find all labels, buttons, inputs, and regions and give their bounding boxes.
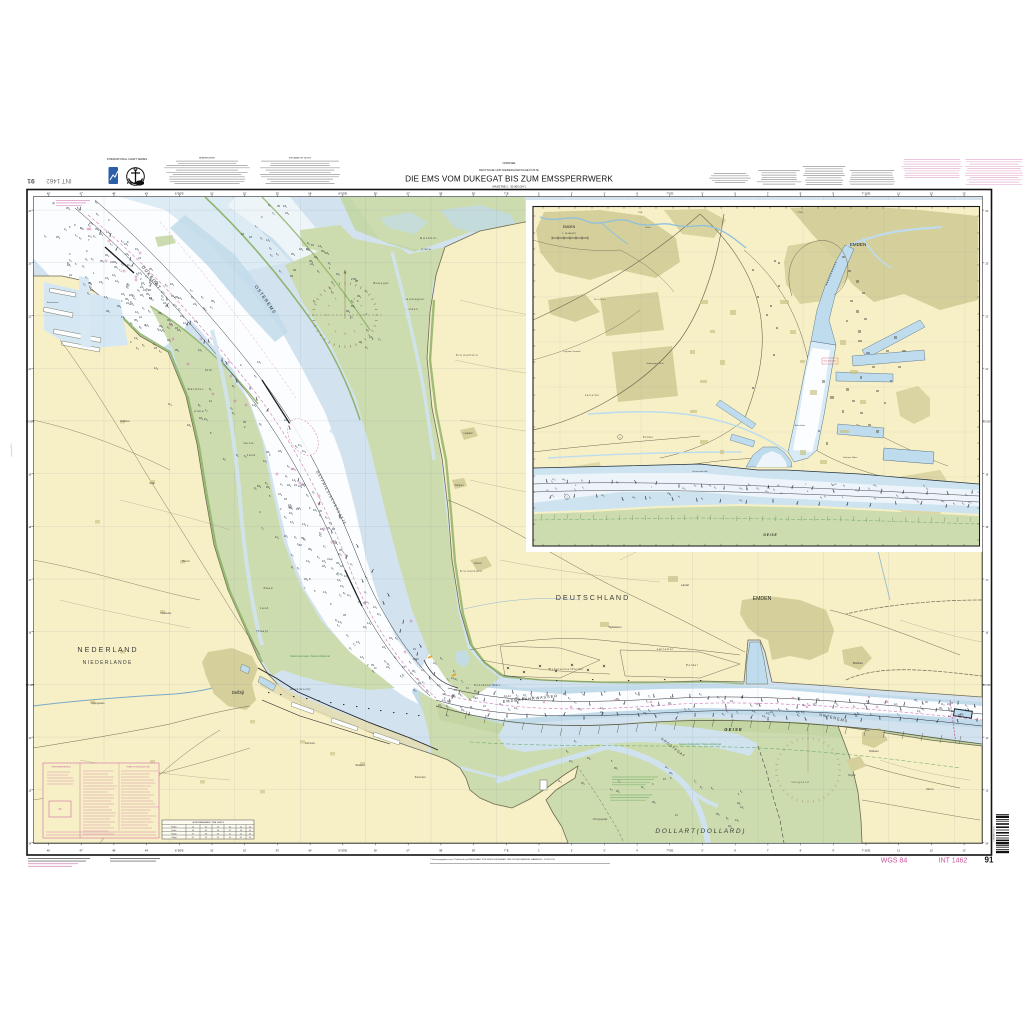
svg-text:DIE EMS VOM DUKEGAT BIS ZUM EM: DIE EMS VOM DUKEGAT BIS ZUM EMSSPERRWERK bbox=[405, 175, 613, 184]
svg-text:0.7: 0.7 bbox=[229, 830, 231, 832]
svg-text:0.7: 0.7 bbox=[192, 833, 194, 835]
svg-text:(1): (1) bbox=[52, 202, 55, 205]
svg-text:Außenhafen: Außenhafen bbox=[795, 424, 805, 427]
svg-text:© Herausgegeben vom / Publishe: © Herausgegeben vom / Published by BUNDE… bbox=[430, 858, 556, 861]
svg-text:0.6: 0.6 bbox=[249, 837, 251, 839]
svg-text:( P a a p ): ( P a a p ) bbox=[256, 629, 268, 633]
svg-text:B o k e g a t: B o k e g a t bbox=[374, 281, 389, 285]
svg-text:Pogum: Pogum bbox=[171, 833, 177, 835]
svg-text:57′: 57′ bbox=[407, 191, 411, 195]
svg-text:7°10'E: 7°10'E bbox=[797, 212, 804, 214]
svg-text:17′: 17′ bbox=[28, 579, 32, 582]
svg-text:12: 12 bbox=[582, 487, 584, 490]
svg-text:76: 76 bbox=[552, 495, 554, 498]
svg-text:0.3: 0.3 bbox=[217, 826, 219, 828]
svg-text:H o n d ( H o n d ): H o n d ( H o n d ) bbox=[290, 687, 311, 691]
svg-text:Knick: Knick bbox=[645, 227, 651, 229]
svg-text:22: 22 bbox=[551, 481, 553, 484]
svg-text:7°10′E: 7°10′E bbox=[862, 849, 871, 853]
svg-text:Delfzijl: Delfzijl bbox=[172, 837, 178, 839]
svg-text:46: 46 bbox=[962, 503, 964, 506]
svg-text:24′: 24′ bbox=[28, 210, 32, 213]
svg-text:0.4: 0.4 bbox=[229, 826, 231, 828]
svg-text:Naturschutzgebiet / Natuur-Res: Naturschutzgebiet / Natuur-Reservat bbox=[679, 742, 721, 746]
svg-text:53°20′N: 53°20′N bbox=[26, 421, 35, 424]
svg-text:B r ü c k e n: B r ü c k e n bbox=[594, 298, 606, 301]
svg-text:16′: 16′ bbox=[985, 632, 989, 635]
svg-text:14′: 14′ bbox=[28, 737, 32, 740]
svg-text:14: 14 bbox=[923, 485, 925, 488]
svg-text:6°55′E: 6°55′E bbox=[338, 849, 347, 853]
svg-text:21′: 21′ bbox=[28, 368, 32, 371]
svg-text:p l a t e: p l a t e bbox=[194, 409, 204, 413]
svg-text:Gedruckt 2019: Gedruckt 2019 bbox=[10, 443, 13, 457]
svg-text:0.2: 0.2 bbox=[205, 826, 207, 828]
svg-text:BEMERKUNGEN: BEMERKUNGEN bbox=[199, 158, 215, 160]
svg-text:59′: 59′ bbox=[472, 849, 476, 853]
svg-text:K n o c k s t e r W a r t: K n o c k s t e r W a r t bbox=[474, 683, 500, 687]
svg-text:0.1: 0.1 bbox=[192, 826, 194, 828]
svg-text:Natuurreservaat / Natuur-Reser: Natuurreservaat / Natuur-Reservat bbox=[290, 654, 330, 658]
svg-text:56: 56 bbox=[649, 497, 651, 500]
svg-text:96: 96 bbox=[820, 497, 822, 500]
svg-text:p l a t e: p l a t e bbox=[421, 247, 431, 251]
svg-text:12′: 12′ bbox=[930, 849, 934, 853]
svg-text:0.8: 0.8 bbox=[240, 830, 242, 832]
svg-text:K r u m m h ö r n: K r u m m h ö r n bbox=[460, 569, 483, 573]
svg-text:D O L L A R T ( D O L L A R: D O L L A R T ( D O L L A R D ) bbox=[655, 828, 744, 835]
svg-text:Heringsgaatje: Heringsgaatje bbox=[593, 818, 608, 821]
svg-text:MASSTAB 1 : 30 000 (54°): MASSTAB 1 : 30 000 (54°) bbox=[492, 185, 525, 189]
svg-text:19′: 19′ bbox=[985, 473, 989, 476]
svg-text:56′: 56′ bbox=[374, 191, 378, 195]
svg-text:44: 44 bbox=[917, 501, 919, 504]
svg-text:VERKEHRSREGELN: VERKEHRSREGELN bbox=[51, 767, 71, 769]
svg-text:13′: 13′ bbox=[962, 849, 966, 853]
svg-text:Godlinze: Godlinze bbox=[120, 420, 130, 423]
svg-text:14′: 14′ bbox=[985, 737, 989, 740]
svg-text:P o l d e r: P o l d e r bbox=[686, 663, 698, 667]
svg-text:53°20′N: 53°20′N bbox=[983, 421, 992, 424]
svg-text:54′: 54′ bbox=[308, 849, 312, 853]
svg-text:EMDEN: EMDEN bbox=[563, 225, 576, 229]
svg-text:P a a p: P a a p bbox=[264, 586, 273, 590]
svg-text:88: 88 bbox=[701, 498, 703, 501]
svg-text:INT 1462: INT 1462 bbox=[939, 858, 968, 865]
svg-text:58: 58 bbox=[616, 482, 618, 485]
svg-text:16′: 16′ bbox=[28, 632, 32, 635]
svg-text:INTERNATIONAL CHART SERIES: INTERNATIONAL CHART SERIES bbox=[107, 157, 148, 161]
svg-text:P o l d e r: P o l d e r bbox=[643, 436, 653, 439]
svg-text:52′: 52′ bbox=[243, 849, 247, 853]
svg-text:0.2: 0.2 bbox=[205, 837, 207, 839]
svg-text:96: 96 bbox=[714, 487, 716, 490]
svg-text:13′: 13′ bbox=[962, 191, 966, 195]
svg-text:62: 62 bbox=[874, 498, 876, 501]
svg-text:11′: 11′ bbox=[897, 191, 901, 195]
svg-text:Jarßumer Hafen: Jarßumer Hafen bbox=[843, 457, 857, 459]
svg-text:TRAFFIC REGULATIONS: TRAFFIC REGULATIONS bbox=[126, 766, 150, 769]
svg-text:62: 62 bbox=[746, 489, 748, 492]
svg-text:Delfzijl: Delfzijl bbox=[232, 690, 244, 695]
svg-text:24: 24 bbox=[555, 488, 557, 491]
svg-text:0.1: 0.1 bbox=[192, 837, 194, 839]
svg-text:52′: 52′ bbox=[243, 191, 247, 195]
svg-text:R a n d z e l -: R a n d z e l - bbox=[188, 387, 205, 391]
svg-text:Ditzum: Ditzum bbox=[926, 788, 933, 791]
svg-text:46: 46 bbox=[768, 487, 770, 490]
svg-text:58′: 58′ bbox=[439, 849, 443, 853]
svg-text:0.3: 0.3 bbox=[249, 833, 251, 835]
svg-text:E m s h ö r n -: E m s h ö r n - bbox=[420, 236, 438, 240]
svg-text:46′: 46′ bbox=[47, 849, 51, 853]
svg-text:11′: 11′ bbox=[897, 849, 901, 853]
svg-text:58: 58 bbox=[926, 488, 928, 491]
svg-text:54′: 54′ bbox=[308, 191, 312, 195]
svg-text:59′: 59′ bbox=[472, 191, 476, 195]
svg-text:INT 1462: INT 1462 bbox=[46, 177, 72, 184]
svg-text:53′: 53′ bbox=[276, 849, 280, 853]
svg-text:53°15′N: 53°15′N bbox=[983, 684, 992, 687]
svg-text:Wybelsum: Wybelsum bbox=[608, 625, 622, 629]
svg-text:Bierum: Bierum bbox=[182, 560, 190, 563]
svg-text:57′: 57′ bbox=[407, 849, 411, 853]
svg-text:Pogum: Pogum bbox=[848, 774, 856, 777]
svg-text:Campen: Campen bbox=[454, 484, 464, 487]
svg-text:DEUTSCHE UND NIEDERLÄNDISCHE K: DEUTSCHE UND NIEDERLÄNDISCHE KÜSTE bbox=[479, 168, 539, 172]
svg-text:96: 96 bbox=[669, 494, 671, 497]
svg-text:Loquard: Loquard bbox=[464, 432, 473, 435]
svg-text:19′: 19′ bbox=[28, 473, 32, 476]
svg-text:49′: 49′ bbox=[145, 191, 149, 195]
svg-text:91: 91 bbox=[985, 856, 994, 865]
svg-text:58: 58 bbox=[896, 495, 898, 498]
svg-text:24′: 24′ bbox=[985, 210, 989, 213]
svg-text:24′: 24′ bbox=[28, 842, 32, 845]
svg-text:47′: 47′ bbox=[80, 191, 84, 195]
svg-text:51′: 51′ bbox=[210, 849, 214, 853]
svg-text:98: 98 bbox=[831, 484, 833, 487]
svg-text:Farmsum: Farmsum bbox=[305, 742, 315, 745]
svg-text:N I E D E R L A N D E: N I E D E R L A N D E bbox=[83, 660, 132, 666]
svg-text:EXPLANATORY NOTES: EXPLANATORY NOTES bbox=[289, 157, 312, 160]
svg-text:Rysum: Rysum bbox=[474, 562, 481, 565]
svg-text:W y b e l s u m e r P o l d: W y b e l s u m e r P o l d e r bbox=[548, 667, 583, 671]
svg-text:24′: 24′ bbox=[985, 842, 989, 845]
svg-text:51′: 51′ bbox=[210, 191, 214, 195]
svg-text:53°15′N: 53°15′N bbox=[26, 684, 35, 687]
svg-text:Petkum: Petkum bbox=[869, 749, 879, 753]
svg-text:53′: 53′ bbox=[276, 191, 280, 195]
svg-text:0.5: 0.5 bbox=[240, 826, 242, 828]
svg-text:47′: 47′ bbox=[80, 849, 84, 853]
svg-text:66: 66 bbox=[678, 496, 680, 499]
svg-text:0.5: 0.5 bbox=[240, 837, 242, 839]
svg-text:0.9: 0.9 bbox=[217, 833, 219, 835]
svg-text:Holwierde: Holwierde bbox=[161, 612, 172, 615]
svg-text:G E I S E: G E I S E bbox=[763, 533, 777, 537]
svg-text:0.3: 0.3 bbox=[217, 837, 219, 839]
svg-text:12′: 12′ bbox=[930, 191, 934, 195]
svg-text:98: 98 bbox=[748, 484, 750, 487]
svg-text:Weiwerd: Weiwerd bbox=[355, 764, 365, 767]
svg-text:0.4: 0.4 bbox=[192, 830, 194, 832]
svg-text:L a r r e l t e r: L a r r e l t e r bbox=[585, 394, 599, 397]
svg-text:Paap: Paap bbox=[327, 558, 333, 561]
svg-text:58′: 58′ bbox=[439, 191, 443, 195]
svg-text:Nesserlander Höft: Nesserlander Höft bbox=[692, 470, 708, 473]
svg-text:7°E: 7°E bbox=[504, 849, 509, 853]
svg-text:49′: 49′ bbox=[145, 849, 149, 853]
svg-text:26: 26 bbox=[868, 488, 870, 491]
svg-text:Appingedam: Appingedam bbox=[91, 702, 104, 705]
svg-text:13′: 13′ bbox=[985, 790, 989, 793]
svg-text:1 : 15 000 (25"): 1 : 15 000 (25") bbox=[562, 233, 576, 235]
svg-text:9 783898 719131: 9 783898 719131 bbox=[994, 825, 996, 841]
svg-text:Emden: Emden bbox=[171, 826, 176, 828]
svg-text:0.8: 0.8 bbox=[205, 833, 207, 835]
svg-text:0.6: 0.6 bbox=[249, 826, 251, 828]
svg-text:Volkswagen Werk: Volkswagen Werk bbox=[646, 362, 664, 365]
svg-text:GEZEITENANGABEN / TIDAL LEVELS: GEZEITENANGABEN / TIDAL LEVELS bbox=[192, 821, 224, 824]
svg-text:K r u m m h ö r n: K r u m m h ö r n bbox=[456, 353, 479, 357]
svg-text:44: 44 bbox=[773, 489, 775, 492]
svg-text:EMDEN: EMDEN bbox=[850, 242, 867, 247]
svg-text:0.4: 0.4 bbox=[229, 837, 231, 839]
svg-text:Eemshaven: Eemshaven bbox=[47, 302, 59, 304]
svg-text:N E D E R L A N D: N E D E R L A N D bbox=[77, 645, 136, 654]
svg-text:z a n d: z a n d bbox=[247, 453, 256, 457]
svg-text:0.9: 0.9 bbox=[249, 830, 251, 832]
svg-text:17′: 17′ bbox=[985, 579, 989, 582]
svg-text:21′: 21′ bbox=[985, 368, 989, 371]
svg-text:L a r r e l t e r: L a r r e l t e r bbox=[657, 647, 674, 651]
svg-text:91: 91 bbox=[27, 177, 35, 184]
svg-text:56′: 56′ bbox=[374, 849, 378, 853]
svg-text:Termunten: Termunten bbox=[414, 776, 426, 779]
svg-text:0.6: 0.6 bbox=[217, 830, 219, 832]
svg-text:0.1: 0.1 bbox=[229, 833, 231, 835]
svg-text:Logumer Vorwerk: Logumer Vorwerk bbox=[563, 350, 581, 353]
svg-text:Borßum: Borßum bbox=[853, 661, 864, 665]
svg-text:z a n d: z a n d bbox=[260, 606, 269, 610]
svg-text:7°5′E: 7°5′E bbox=[666, 849, 673, 853]
svg-text:66: 66 bbox=[694, 485, 696, 488]
svg-text:6°50′E: 6°50′E bbox=[175, 849, 184, 853]
svg-text:76: 76 bbox=[574, 489, 576, 492]
svg-text:M a n s l a g t e r: M a n s l a g t e r bbox=[404, 297, 425, 301]
svg-text:EMDEN: EMDEN bbox=[753, 596, 772, 602]
svg-text:23′: 23′ bbox=[28, 263, 32, 266]
svg-text:82: 82 bbox=[581, 480, 583, 483]
svg-text:64: 64 bbox=[843, 485, 845, 488]
svg-text:18′: 18′ bbox=[28, 526, 32, 529]
svg-text:46′: 46′ bbox=[47, 191, 51, 195]
svg-text:22′: 22′ bbox=[28, 315, 32, 318]
svg-text:42: 42 bbox=[881, 489, 883, 492]
svg-text:22: 22 bbox=[824, 496, 826, 499]
svg-text:Spijk: Spijk bbox=[149, 482, 155, 485]
svg-text:7°5'E: 7°5'E bbox=[638, 212, 643, 214]
svg-text:48: 48 bbox=[709, 485, 711, 488]
svg-text:G E I S E: G E I S E bbox=[724, 727, 742, 732]
svg-text:23′: 23′ bbox=[985, 263, 989, 266]
svg-text:D E U T S C H L A N D: D E U T S C H L A N D bbox=[556, 593, 629, 602]
svg-text:48′: 48′ bbox=[112, 849, 116, 853]
svg-text:48′: 48′ bbox=[112, 191, 116, 195]
svg-text:WGS 84: WGS 84 bbox=[881, 858, 908, 865]
svg-text:22′: 22′ bbox=[985, 315, 989, 318]
svg-text:66: 66 bbox=[965, 494, 967, 497]
svg-text:Larrelt: Larrelt bbox=[681, 583, 689, 587]
svg-text:0.5: 0.5 bbox=[205, 830, 207, 832]
svg-text:NORDSEE: NORDSEE bbox=[503, 161, 516, 165]
svg-text:64: 64 bbox=[953, 503, 955, 506]
svg-text:18′: 18′ bbox=[985, 526, 989, 529]
svg-text:Knock: Knock bbox=[172, 830, 177, 832]
svg-text:H o n d -: H o n d - bbox=[244, 441, 255, 445]
svg-text:0.2: 0.2 bbox=[240, 833, 242, 835]
svg-text:13′: 13′ bbox=[28, 790, 32, 793]
svg-text:H o o g s a n d: H o o g s a n d bbox=[792, 780, 809, 784]
